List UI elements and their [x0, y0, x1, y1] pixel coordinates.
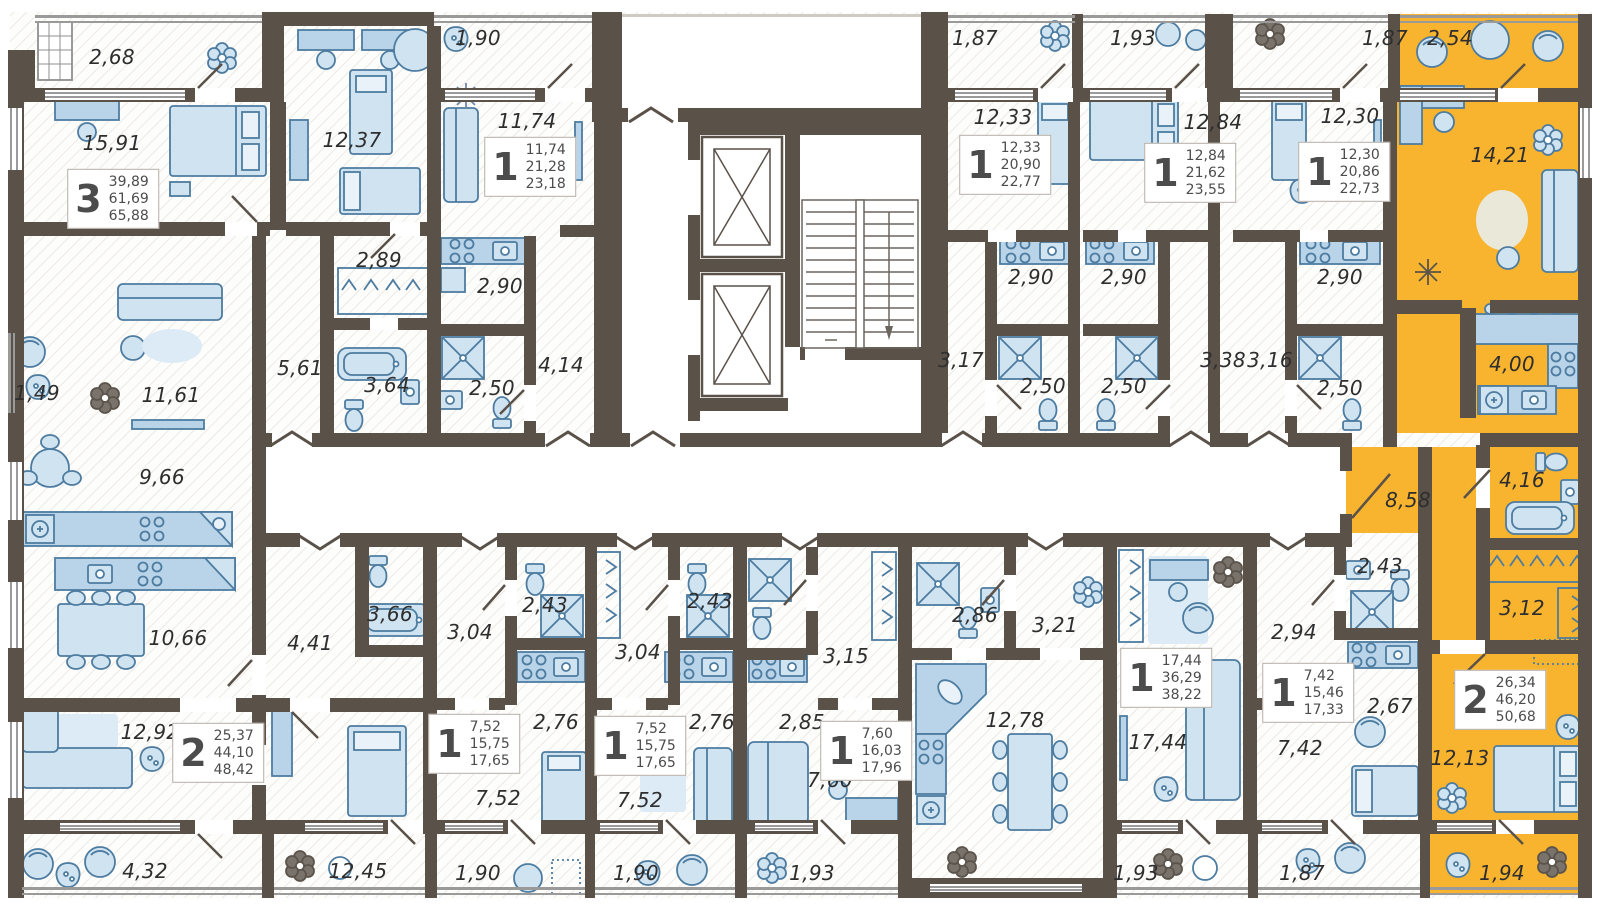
apartment-area-value: 15,75 — [636, 738, 676, 755]
apartment-area-value: 48,42 — [214, 761, 254, 778]
room-area-label: 2,86 — [952, 603, 998, 627]
apartment-area-value: 17,33 — [1304, 701, 1344, 718]
apartment-areas: 11,7421,2823,18 — [526, 142, 566, 192]
room-area-label: 2,90 — [477, 274, 523, 298]
room-area-label: 1,90 — [455, 861, 501, 885]
room-area-label: 1,93 — [1113, 861, 1159, 885]
room-area-label: 2,43 — [1357, 554, 1403, 578]
apartment-area-value: 21,28 — [526, 159, 566, 176]
apartment-areas: 12,3020,8622,73 — [1340, 147, 1380, 197]
room-area-label: 2,94 — [1271, 620, 1317, 644]
apartment-area-value: 65,88 — [109, 207, 149, 224]
apartment-areas: 7,5215,7517,65 — [470, 719, 510, 769]
apartment-rooms-count: 1 — [1270, 675, 1296, 711]
apartment-area-value: 17,96 — [862, 759, 902, 776]
apartment-area-value: 7,52 — [636, 721, 676, 738]
apartment-rooms-count: 1 — [828, 733, 854, 769]
apartment-areas: 7,4215,4617,33 — [1304, 668, 1344, 718]
apartment-rooms-count: 2 — [1462, 682, 1488, 718]
room-area-label: 2,50 — [1020, 374, 1066, 398]
apartment-area-value: 25,37 — [214, 728, 254, 745]
room-area-label: 7,42 — [1277, 736, 1323, 760]
room-area-label: 11,74 — [498, 109, 557, 133]
room-area-label: 1,93 — [1110, 26, 1156, 50]
apartment-area-value: 16,03 — [862, 743, 902, 760]
apartment-area-value: 39,89 — [109, 174, 149, 191]
apartment-areas: 26,3446,2050,68 — [1496, 675, 1536, 725]
apartment-area-value: 20,86 — [1340, 164, 1380, 181]
apartment-info-card[interactable]: 112,3020,8622,73 — [1298, 142, 1390, 202]
room-area-label: 7,52 — [475, 786, 521, 810]
room-area-label: 3,21 — [1032, 613, 1078, 637]
room-area-label: 8,58 — [1385, 488, 1431, 512]
apartment-rooms-count: 1 — [967, 147, 993, 183]
apartment-area-value: 15,46 — [1304, 685, 1344, 702]
apartment-info-card[interactable]: 111,7421,2823,18 — [484, 137, 576, 197]
apartment-area-value: 17,65 — [636, 754, 676, 771]
apartment-area-value: 7,42 — [1304, 668, 1344, 685]
room-area-label: 17,44 — [1129, 730, 1188, 754]
labels-layer: 2,6815,9112,371,9011,742,892,903,642,504… — [0, 0, 1600, 910]
room-area-label: 1,90 — [455, 26, 501, 50]
apartment-info-card[interactable]: 117,4436,2938,22 — [1120, 648, 1212, 708]
apartment-info-card[interactable]: 112,8421,6223,55 — [1144, 143, 1236, 203]
room-area-label: 4,41 — [287, 631, 333, 655]
room-area-label: 12,84 — [1184, 110, 1243, 134]
apartment-area-value: 61,69 — [109, 191, 149, 208]
apartment-areas: 12,8421,6223,55 — [1186, 148, 1226, 198]
room-area-label: 12,30 — [1321, 104, 1380, 128]
apartment-area-value: 22,77 — [1001, 173, 1041, 190]
room-area-label: 2,67 — [1367, 694, 1413, 718]
floor-plan: 2,6815,9112,371,9011,742,892,903,642,504… — [0, 0, 1600, 910]
apartment-areas: 7,5215,7517,65 — [636, 721, 676, 771]
room-area-label: 12,13 — [1431, 746, 1490, 770]
room-area-label: 1,90 — [613, 861, 659, 885]
apartment-rooms-count: 1 — [1152, 155, 1178, 191]
apartment-areas: 7,6016,0317,96 — [862, 726, 902, 776]
apartment-areas: 25,3744,1048,42 — [214, 728, 254, 778]
apartment-rooms-count: 1 — [1306, 154, 1332, 190]
apartment-area-value: 20,90 — [1001, 157, 1041, 174]
apartment-area-value: 50,68 — [1496, 708, 1536, 725]
room-area-label: 1,49 — [14, 381, 60, 405]
room-area-label: 12,37 — [323, 128, 382, 152]
room-area-label: 1,93 — [789, 861, 835, 885]
room-area-label: 3,66 — [367, 602, 413, 626]
apartment-rooms-count: 1 — [492, 149, 518, 185]
room-area-label: 11,61 — [142, 383, 201, 407]
apartment-areas: 39,8961,6965,88 — [109, 174, 149, 224]
apartment-area-value: 7,60 — [862, 726, 902, 743]
room-area-label: 9,66 — [139, 465, 185, 489]
apartment-area-value: 12,30 — [1340, 147, 1380, 164]
room-area-label: 12,92 — [121, 720, 180, 744]
apartment-info-card[interactable]: 17,5215,7517,65 — [428, 714, 520, 774]
room-area-label: 3,64 — [364, 373, 410, 397]
room-area-label: 3,12 — [1499, 596, 1545, 620]
room-area-label: 2,50 — [469, 376, 515, 400]
room-area-label: 12,78 — [986, 708, 1045, 732]
apartment-area-value: 15,75 — [470, 736, 510, 753]
room-area-label: 2,90 — [1101, 265, 1147, 289]
apartment-area-value: 7,52 — [470, 719, 510, 736]
room-area-label: 7,52 — [617, 788, 663, 812]
apartment-rooms-count: 1 — [436, 726, 462, 762]
apartment-area-value: 23,18 — [526, 175, 566, 192]
room-area-label: 2,90 — [1317, 265, 1363, 289]
apartment-info-card[interactable]: 339,8961,6965,88 — [67, 169, 159, 229]
apartment-area-value: 36,29 — [1162, 670, 1202, 687]
apartment-area-value: 17,44 — [1162, 653, 1202, 670]
room-area-label: 3,17 — [938, 348, 984, 372]
apartment-info-card[interactable]: 17,5215,7517,65 — [594, 716, 686, 776]
apartment-area-value: 11,74 — [526, 142, 566, 159]
room-area-label: 3,04 — [615, 640, 661, 664]
apartment-area-value: 44,10 — [214, 745, 254, 762]
room-area-label: 4,00 — [1489, 352, 1535, 376]
apartment-area-value: 17,65 — [470, 752, 510, 769]
room-area-label: 2,43 — [687, 589, 733, 613]
apartment-area-value: 12,84 — [1186, 148, 1226, 165]
room-area-label: 12,33 — [974, 105, 1033, 129]
apartment-info-card[interactable]: 17,6016,0317,96 — [820, 721, 912, 781]
apartment-info-card[interactable]: 226,3446,2050,68 — [1454, 670, 1546, 730]
apartment-areas: 12,3320,9022,77 — [1001, 140, 1041, 190]
apartment-area-value: 22,73 — [1340, 180, 1380, 197]
room-area-label: 3,04 — [447, 620, 493, 644]
room-area-label: 4,16 — [1499, 468, 1545, 492]
apartment-rooms-count: 3 — [75, 181, 101, 217]
apartment-info-card[interactable]: 17,4215,4617,33 — [1262, 663, 1354, 723]
room-area-label: 2,54 — [1427, 26, 1473, 50]
room-area-label: 2,76 — [689, 710, 735, 734]
room-area-label: 2,68 — [89, 45, 135, 69]
apartment-area-value: 46,20 — [1496, 692, 1536, 709]
room-area-label: 10,66 — [149, 626, 208, 650]
room-area-label: 2,50 — [1101, 374, 1147, 398]
apartment-rooms-count: 1 — [602, 728, 628, 764]
apartment-info-card[interactable]: 225,3744,1048,42 — [172, 723, 264, 783]
room-area-label: 2,90 — [1008, 265, 1054, 289]
room-area-label: 1,87 — [1279, 861, 1325, 885]
room-area-label: 3,38 — [1200, 348, 1246, 372]
room-area-label: 2,76 — [533, 710, 579, 734]
room-area-label: 2,85 — [779, 710, 825, 734]
room-area-label: 2,50 — [1317, 376, 1363, 400]
room-area-label: 14,21 — [1471, 143, 1530, 167]
room-area-label: 12,45 — [329, 859, 388, 883]
room-area-label: 1,87 — [952, 26, 998, 50]
room-area-label: 4,32 — [122, 859, 168, 883]
room-area-label: 3,16 — [1247, 348, 1293, 372]
room-area-label: 3,15 — [823, 644, 869, 668]
room-area-label: 4,14 — [538, 353, 584, 377]
apartment-rooms-count: 1 — [1128, 660, 1154, 696]
apartment-area-value: 23,55 — [1186, 181, 1226, 198]
room-area-label: 2,89 — [356, 248, 402, 272]
apartment-areas: 17,4436,2938,22 — [1162, 653, 1202, 703]
apartment-area-value: 21,62 — [1186, 165, 1226, 182]
apartment-rooms-count: 2 — [180, 735, 206, 771]
room-area-label: 1,94 — [1479, 861, 1525, 885]
room-area-label: 2,43 — [522, 593, 568, 617]
room-area-label: 15,91 — [83, 131, 142, 155]
apartment-area-value: 38,22 — [1162, 686, 1202, 703]
room-area-label: 1,87 — [1362, 26, 1408, 50]
apartment-area-value: 12,33 — [1001, 140, 1041, 157]
apartment-area-value: 26,34 — [1496, 675, 1536, 692]
apartment-info-card[interactable]: 112,3320,9022,77 — [959, 135, 1051, 195]
room-area-label: 5,61 — [277, 356, 323, 380]
